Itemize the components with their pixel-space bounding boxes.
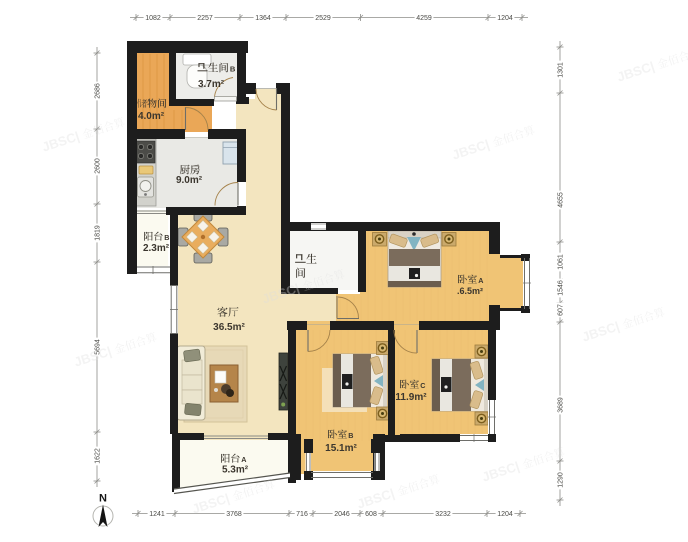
svg-text:11.9m²: 11.9m²: [395, 392, 427, 403]
svg-text:1622: 1622: [95, 448, 102, 464]
svg-text:C: C: [420, 381, 425, 390]
svg-text:2600: 2600: [95, 158, 102, 174]
svg-text:2257: 2257: [197, 15, 213, 22]
svg-text:1061: 1061: [558, 254, 565, 270]
svg-text:1290: 1290: [558, 472, 565, 488]
svg-text:2686: 2686: [95, 83, 102, 99]
svg-text:4655: 4655: [558, 192, 565, 208]
svg-text:B: B: [348, 431, 353, 440]
svg-text:2.3m²: 2.3m²: [143, 243, 170, 254]
svg-text:1204: 1204: [497, 15, 513, 22]
svg-text:N: N: [99, 493, 107, 505]
svg-text:B: B: [230, 65, 236, 74]
svg-text:3.7m²: 3.7m²: [198, 79, 225, 90]
svg-text:1546: 1546: [558, 280, 565, 296]
svg-text:3689: 3689: [558, 397, 565, 413]
svg-text:A: A: [241, 455, 246, 464]
svg-text:1204: 1204: [497, 511, 513, 518]
svg-text:9.0m²: 9.0m²: [176, 175, 203, 186]
svg-text:608: 608: [365, 511, 377, 518]
svg-text:1364: 1364: [255, 15, 271, 22]
svg-text:2046: 2046: [334, 511, 350, 518]
svg-text:3768: 3768: [226, 511, 242, 518]
svg-text:1301: 1301: [558, 62, 565, 78]
svg-text:716: 716: [296, 511, 308, 518]
svg-text:1082: 1082: [145, 15, 161, 22]
svg-text:A: A: [478, 276, 483, 285]
svg-text:15.1m²: 15.1m²: [325, 443, 357, 454]
svg-text:5.3m²: 5.3m²: [222, 465, 249, 476]
svg-text:1241: 1241: [149, 511, 165, 518]
svg-text:4.0m²: 4.0m²: [138, 111, 165, 122]
svg-text:4259: 4259: [416, 15, 432, 22]
svg-text:36.5m²: 36.5m²: [213, 322, 245, 333]
svg-text:607: 607: [558, 304, 565, 316]
svg-text:1819: 1819: [95, 225, 102, 241]
svg-text:B: B: [164, 233, 169, 242]
svg-text:3232: 3232: [435, 511, 451, 518]
svg-text:.6.5m²: .6.5m²: [457, 286, 483, 296]
svg-text:2529: 2529: [315, 15, 331, 22]
